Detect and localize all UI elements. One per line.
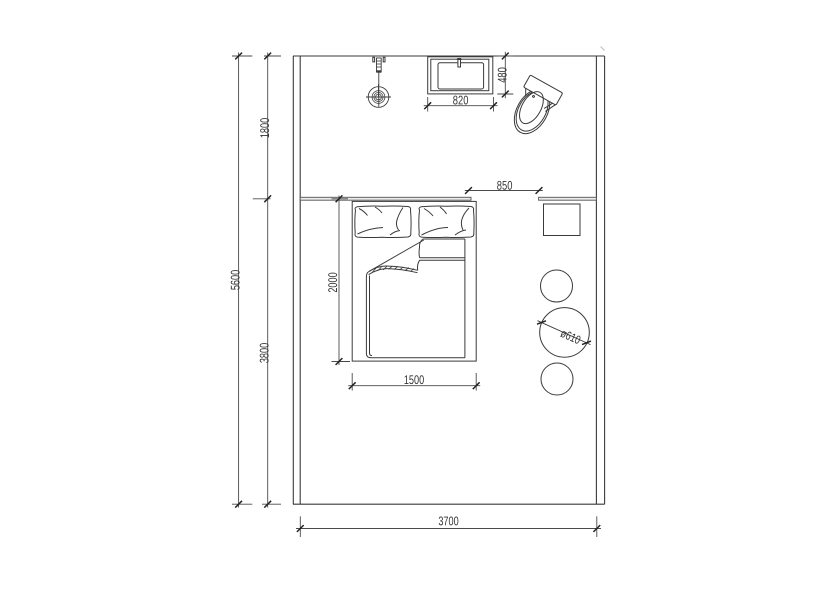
svg-text:ø610: ø610 — [558, 326, 583, 347]
svg-text:1800: 1800 — [258, 118, 272, 138]
svg-text:5600: 5600 — [229, 270, 243, 290]
svg-text:850: 850 — [497, 179, 513, 193]
svg-text:480: 480 — [495, 67, 509, 83]
svg-text:3700: 3700 — [438, 514, 458, 528]
svg-text:2000: 2000 — [326, 272, 340, 292]
svg-text:3800: 3800 — [258, 343, 272, 363]
svg-text:820: 820 — [453, 93, 469, 107]
svg-text:1500: 1500 — [404, 373, 424, 387]
